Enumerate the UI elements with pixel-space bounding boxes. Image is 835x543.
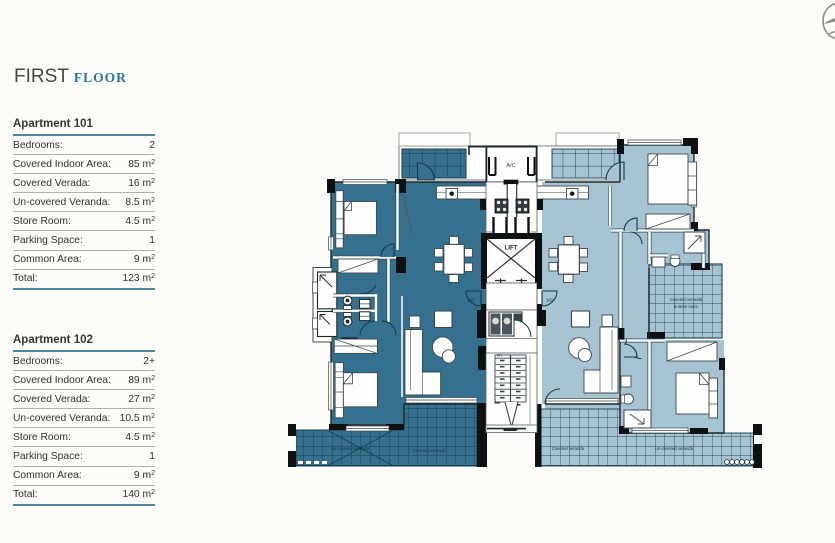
svg-text:Un-covered veranda: Un-covered veranda xyxy=(655,446,694,451)
svg-text:101: 101 xyxy=(467,298,475,303)
svg-text:A/C: A/C xyxy=(506,163,515,169)
svg-text:Covered veranda: Covered veranda xyxy=(552,446,585,451)
svg-text:AN: AN xyxy=(497,354,502,358)
svg-text:Covered veranda: Covered veranda xyxy=(670,297,703,302)
svg-text:Covered veranda: Covered veranda xyxy=(413,448,446,453)
svg-text:Un-covered veranda: Un-covered veranda xyxy=(331,446,370,451)
svg-text:& store room: & store room xyxy=(674,304,698,309)
svg-text:102: 102 xyxy=(546,298,554,303)
svg-text:LIFT: LIFT xyxy=(504,245,517,252)
